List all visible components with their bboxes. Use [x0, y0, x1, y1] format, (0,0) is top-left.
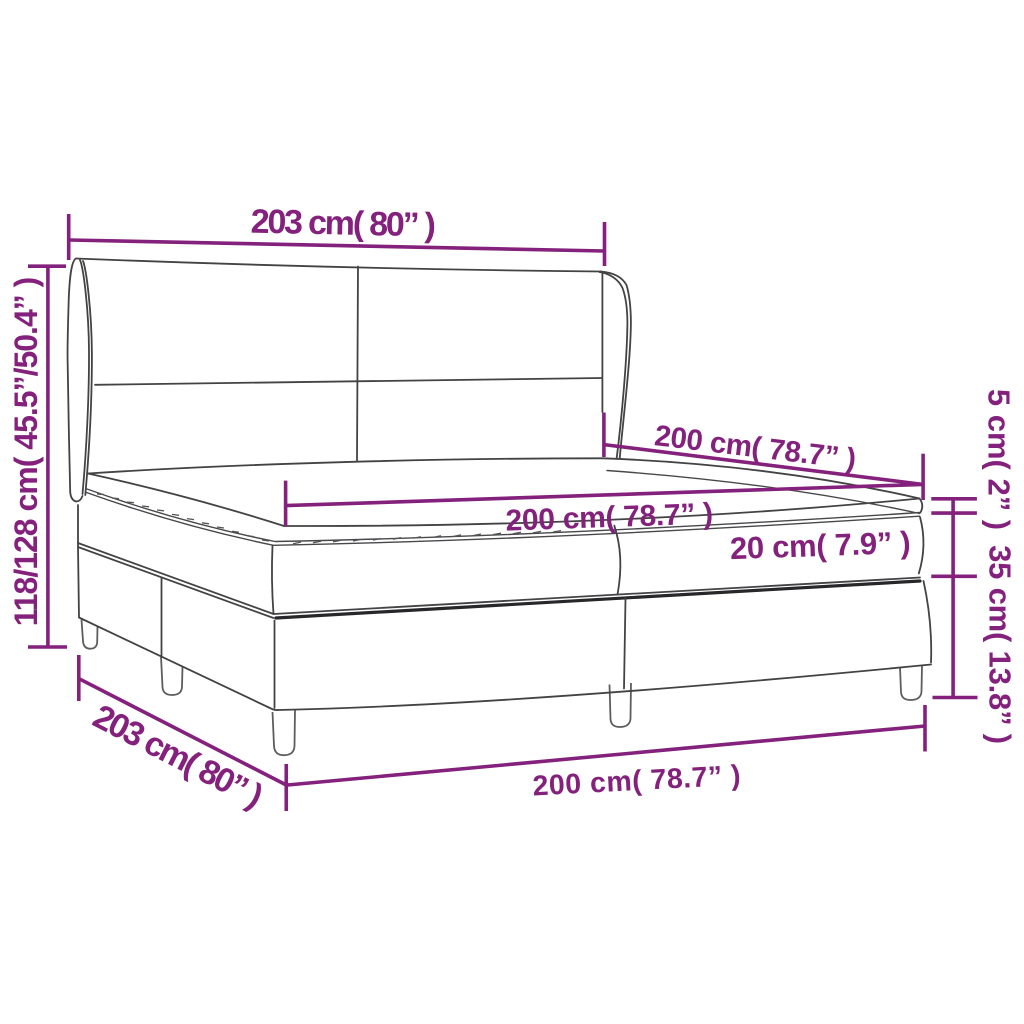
svg-text:118/128 cm( 45.5”/50.4” ): 118/128 cm( 45.5”/50.4” ): [8, 277, 44, 626]
svg-text:5 cm( 2” ): 5 cm( 2” ): [982, 389, 1017, 530]
svg-text:203 cm( 80” ): 203 cm( 80” ): [250, 203, 435, 245]
svg-text:35 cm( 13.8” ): 35 cm( 13.8” ): [983, 545, 1018, 744]
svg-text:20 cm( 7.9” ): 20 cm( 7.9” ): [729, 525, 911, 566]
